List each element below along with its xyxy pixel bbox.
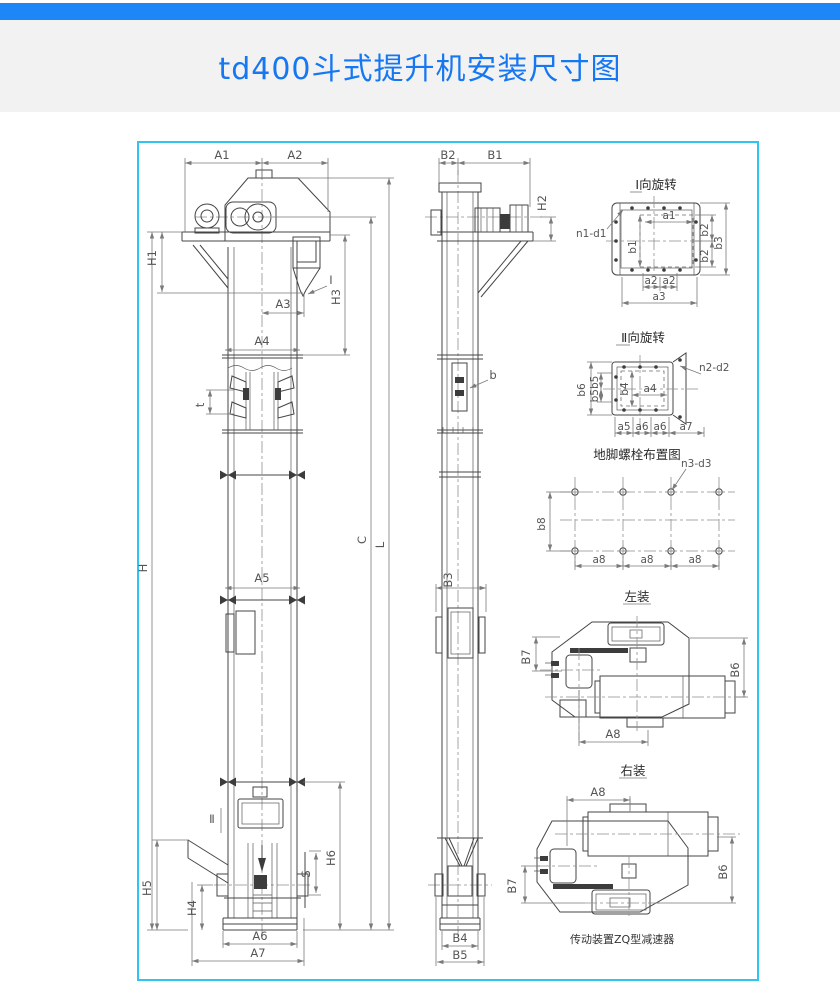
callout-n2-d2: n2-d2	[699, 362, 729, 374]
dim-label-b3: B3	[441, 572, 455, 587]
dim-label-lm-a8: A8	[605, 727, 620, 741]
callout-section-ii: Ⅱ	[209, 812, 215, 826]
dim-label-b2: B2	[440, 148, 455, 162]
dim-label-a3: A3	[275, 297, 290, 311]
dim-label-a2: A2	[287, 148, 302, 162]
dim-label-b: b	[489, 368, 496, 382]
dim-label-det1-b3: b3	[713, 236, 725, 249]
dim-label-h4: H4	[185, 900, 199, 916]
dim-label-a7: A7	[250, 946, 265, 960]
dim-label-b1: B1	[487, 148, 502, 162]
callout-n1-d1: n1-d1	[576, 228, 606, 240]
dim-label-b4: B4	[452, 931, 467, 945]
callout-section-i: Ⅰ	[329, 273, 332, 287]
left-mount-title: 左装	[624, 589, 649, 604]
dim-label-rm-a8: A8	[590, 785, 605, 799]
dim-label-det1-a2-right: a2	[662, 275, 675, 287]
dim-label-rm-b7: B7	[505, 878, 519, 893]
dim-label-s: S	[299, 870, 313, 877]
dim-label-b5: B5	[452, 948, 467, 962]
dim-label-det2-b4: b4	[619, 382, 631, 396]
dim-label-l: L	[373, 541, 387, 548]
dim-label-rm-b6: B6	[716, 864, 730, 879]
dim-label-a4: A4	[254, 334, 269, 348]
dim-label-h: H	[136, 564, 150, 573]
anchor-bolt-title: 地脚螺栓布置图	[593, 447, 681, 462]
dim-label-det1-b1: b1	[627, 240, 639, 253]
dim-label-det1-a2-left: a2	[644, 275, 657, 287]
dim-label-h6: H6	[324, 850, 338, 866]
dim-label-a5: A5	[254, 571, 269, 585]
dim-label-c: C	[355, 536, 369, 544]
detail-ii-title: Ⅱ向旋转	[621, 330, 665, 345]
dim-label-det2-a6-left: a6	[635, 421, 648, 433]
dim-label-a8-3: a8	[688, 554, 701, 566]
detail-i-title: Ⅰ向旋转	[635, 177, 676, 192]
dim-label-a1: A1	[214, 148, 229, 162]
dim-label-h3: H3	[329, 289, 343, 305]
dim-label-t: t	[193, 402, 207, 407]
dim-label-det1-b2-lower: b2	[699, 249, 711, 262]
installation-dimension-drawing: A1 A2 H1 H H3 A3 A4 Ⅰ t A5 C L Ⅱ H6 S H5…	[0, 0, 840, 1008]
dim-label-h5: H5	[140, 880, 154, 896]
dim-label-a8-1: a8	[592, 554, 605, 566]
dim-label-h2: H2	[535, 195, 549, 211]
dim-label-a8-2: a8	[640, 554, 653, 566]
dim-label-h1: H1	[145, 250, 159, 266]
dim-label-lm-b7: B7	[519, 649, 533, 664]
dim-label-det2-b5b5: b5b5	[589, 376, 601, 403]
dim-label-det1-a1: a1	[662, 210, 675, 222]
dim-label-lm-b6: B6	[728, 662, 742, 677]
dim-label-det2-a6-right: a6	[653, 421, 666, 433]
dim-label-b8: b8	[536, 517, 548, 530]
callout-n3-d3: n3-d3	[681, 458, 711, 470]
right-mount-title: 右装	[620, 763, 645, 778]
dim-label-det2-b6: b6	[576, 383, 588, 397]
dim-label-det1-a3: a3	[652, 291, 665, 303]
dim-label-det2-a5: a5	[617, 421, 630, 433]
drive-unit-caption: 传动装置ZQ型减速器	[570, 932, 674, 946]
dim-label-det1-b2-upper: b2	[699, 223, 711, 236]
dim-label-det2-a7: a7	[679, 421, 692, 433]
dim-label-det2-a4: a4	[643, 383, 656, 395]
dim-label-a6: A6	[252, 929, 267, 943]
